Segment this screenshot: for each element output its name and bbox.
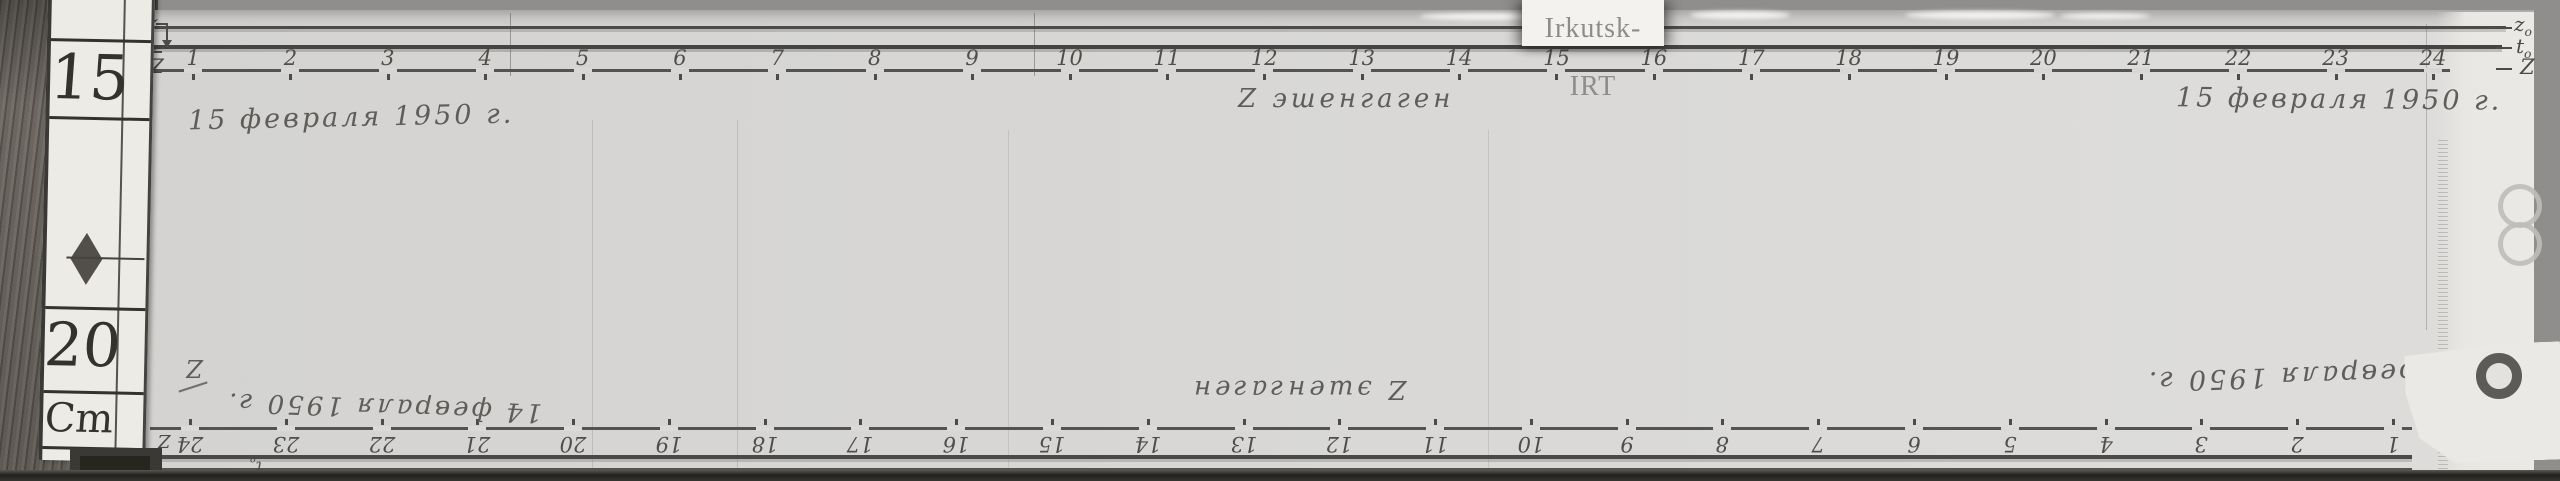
hour-line-gap <box>2001 426 2019 431</box>
hour-line-gap <box>2097 426 2115 431</box>
hour-label: 4 <box>2090 432 2122 456</box>
hour-line-gap <box>2192 426 2210 431</box>
hour-line-gap <box>564 426 582 431</box>
hour-tick <box>1243 419 1246 425</box>
hour-tick <box>764 419 767 425</box>
hour-line-gap <box>1522 426 1540 431</box>
hour-tick <box>572 419 575 425</box>
hour-label: 7 <box>1802 432 1834 456</box>
ruler-value-15: 15 <box>48 44 125 111</box>
hour-label: 6 <box>1898 432 1930 456</box>
hour-line-gap <box>1139 426 1157 431</box>
hour-line-gap <box>468 426 486 431</box>
hour-line-gap <box>1330 426 1348 431</box>
hour-tick <box>1721 419 1724 425</box>
hour-line-gap <box>1618 426 1636 431</box>
hour-label: 16 <box>940 432 972 456</box>
hour-tick <box>955 419 958 425</box>
z-mark-bottom-left: Z <box>186 354 203 382</box>
hour-line-gap <box>373 426 391 431</box>
hour-tick <box>1817 419 1820 425</box>
hour-line-gap <box>277 426 295 431</box>
hour-tick <box>1530 419 1533 425</box>
ruler-unit-cm: Cm <box>41 394 117 443</box>
scanned-magnetogram-photo: z to Z zo to Z 1234567891011121314151617… <box>0 0 2560 481</box>
hour-label: 14 <box>1132 432 1164 456</box>
hour-label: 8 <box>1706 432 1738 456</box>
punch-ring-impression <box>2498 222 2542 266</box>
centimeter-ruler: 15 20 Cm <box>38 0 155 462</box>
hour-tick <box>859 419 862 425</box>
hour-tick <box>2200 419 2203 425</box>
hour-label: 2 <box>2281 432 2313 456</box>
hour-tick <box>1147 419 1150 425</box>
hour-label: 18 <box>749 432 781 456</box>
hour-label: 10 <box>1515 432 1547 456</box>
punch-hole <box>2476 353 2522 399</box>
hour-tick <box>1913 419 1916 425</box>
trace-t0-bottom <box>150 455 2412 459</box>
hour-tick <box>668 419 671 425</box>
trace-label-sub: o <box>250 454 256 465</box>
hour-tick <box>2009 419 2012 425</box>
ruler-divider <box>49 116 149 121</box>
hour-label: 3 <box>2185 432 2217 456</box>
hour-line-gap <box>1905 426 1923 431</box>
bottom-dark-edge <box>0 470 2560 481</box>
hour-tick <box>1434 419 1437 425</box>
hour-tick <box>1051 419 1054 425</box>
hour-tick <box>1338 419 1341 425</box>
hour-line-gap <box>851 426 869 431</box>
hour-line-gap <box>947 426 965 431</box>
hour-tick <box>1626 419 1629 425</box>
caption-bottom-center: Z эшенгаген <box>1190 374 1406 404</box>
hour-label: 11 <box>1419 432 1451 456</box>
hour-line-gap <box>2288 426 2306 431</box>
hour-label: 24 <box>174 432 206 456</box>
hour-baseline <box>150 427 2412 430</box>
trace-label-Z-bottom-start: Z <box>158 431 171 449</box>
hour-tick <box>2392 419 2395 425</box>
hour-label: 21 <box>461 432 493 456</box>
hour-tick <box>2296 419 2299 425</box>
hour-line-gap <box>2384 426 2402 431</box>
hour-line-gap <box>1426 426 1444 431</box>
hour-label: 19 <box>653 432 685 456</box>
hour-label: 15 <box>1036 432 1068 456</box>
hour-label: 22 <box>366 432 398 456</box>
hour-line-gap <box>1043 426 1061 431</box>
station-tag: Irkutsk-IRT <box>1522 0 1664 46</box>
hour-line-gap <box>756 426 774 431</box>
ruler-value-20: 20 <box>42 310 119 381</box>
hour-tick <box>285 419 288 425</box>
hour-label: 23 <box>270 432 302 456</box>
hour-line-gap <box>181 426 199 431</box>
hour-label: 13 <box>1228 432 1260 456</box>
hour-label: 20 <box>557 432 589 456</box>
hour-label: 1 <box>2377 432 2409 456</box>
hour-tick <box>189 419 192 425</box>
hour-label: 5 <box>1994 432 2026 456</box>
hour-label: 9 <box>1611 432 1643 456</box>
hour-line-gap <box>1235 426 1253 431</box>
hour-label: 17 <box>844 432 876 456</box>
hour-line-gap <box>1713 426 1731 431</box>
hour-line-gap <box>660 426 678 431</box>
hour-tick <box>2105 419 2108 425</box>
hour-label: 12 <box>1323 432 1355 456</box>
hour-line-gap <box>1809 426 1827 431</box>
